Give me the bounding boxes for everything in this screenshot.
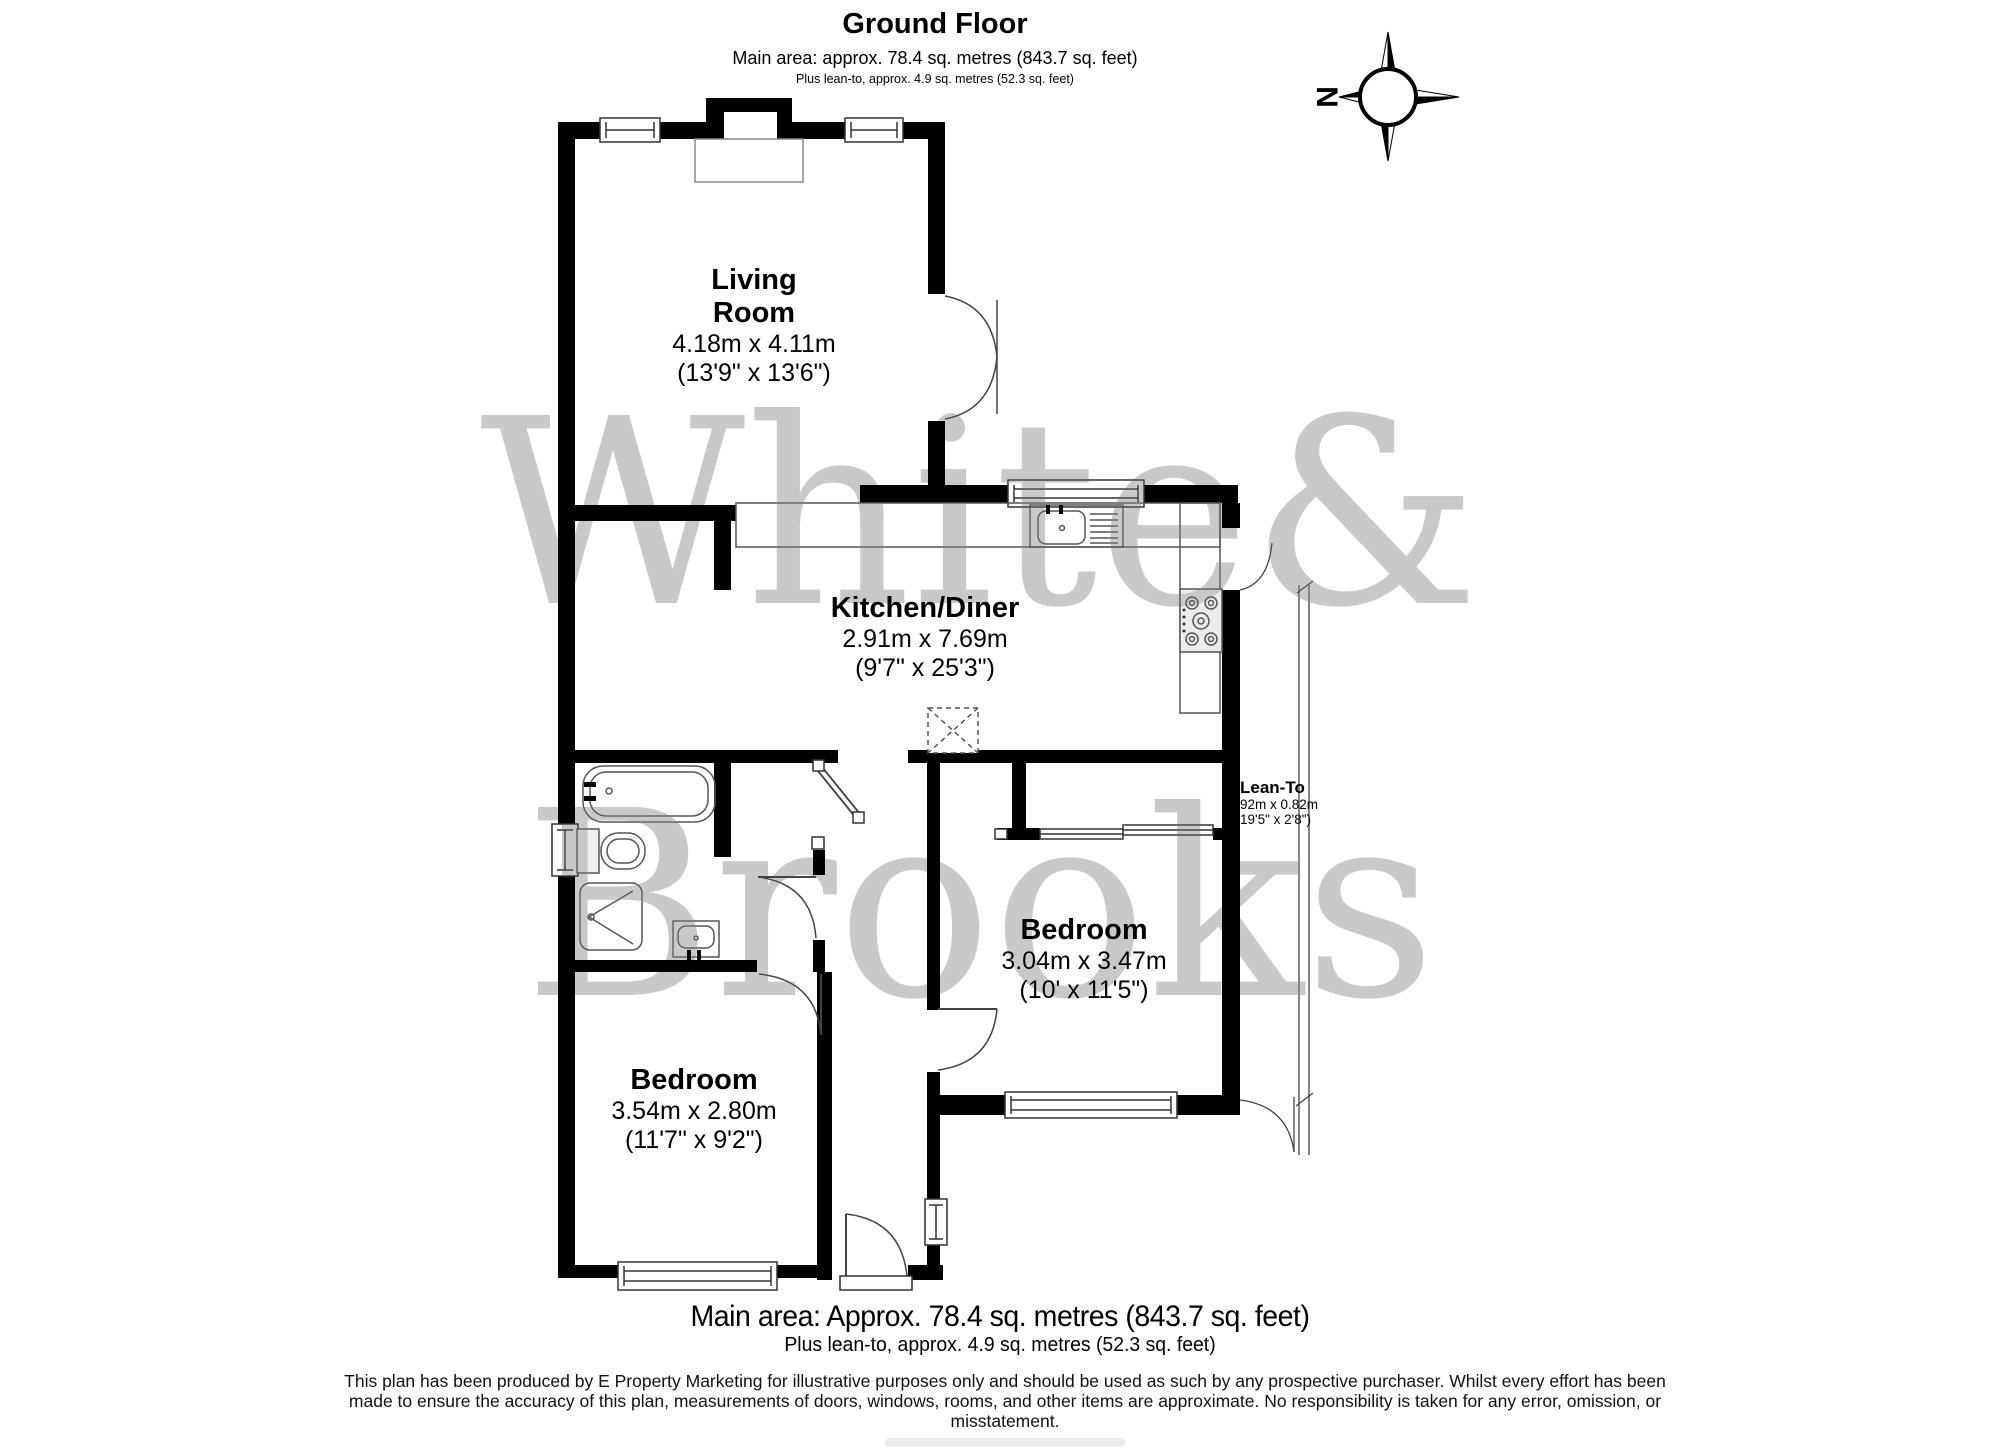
wash-basin: [673, 921, 719, 961]
door-bedroom-left: [759, 974, 821, 1035]
door-kitchen-to-hall: [813, 760, 864, 823]
kitchen-sink: [1030, 505, 1123, 547]
bath: [583, 766, 715, 822]
room-dim-imperial: 19'5" x 2'8"): [1240, 812, 1370, 827]
faded-credit-line: [885, 1438, 1125, 1447]
label-living-room: Living Room 4.18m x 4.11m (13'9" x 13'6"…: [604, 264, 904, 388]
room-dim-imperial: (11'7" x 9'2"): [544, 1126, 844, 1155]
floor-plan-svg: N: [0, 0, 2000, 1455]
door-bedroom-right: [938, 1009, 997, 1070]
floorplan-page: N Ground Floor Main area: approx. 78.4 s…: [0, 0, 2000, 1455]
window-bedroom-right-bottom: [1005, 1092, 1177, 1118]
room-name: Living: [604, 264, 904, 297]
room-dim-metric: 4.18m x 4.11m: [604, 330, 904, 359]
label-bedroom-left: Bedroom 3.54m x 2.80m (11'7" x 9'2"): [544, 1064, 844, 1155]
front-door: [840, 1214, 912, 1290]
window-vestibule: [925, 1199, 947, 1245]
page-title: Ground Floor: [340, 8, 1530, 41]
french-doors-living: [945, 296, 997, 419]
label-kitchen-diner: Kitchen/Diner 2.91m x 7.69m (9'7" x 25'3…: [775, 592, 1075, 683]
sink-drainer: [1090, 514, 1118, 543]
room-name: Room: [604, 297, 904, 330]
window-bathroom: [552, 824, 578, 876]
footer-area-main: Main area: Approx. 78.4 sq. metres (843.…: [335, 1300, 1665, 1334]
footer-area-lean: Plus lean-to, approx. 4.9 sq. metres (52…: [321, 1334, 1679, 1357]
window-living-left: [600, 118, 660, 142]
kitchen-hob: [1180, 589, 1222, 652]
window-bedroom-right-inner-b: [1123, 825, 1213, 835]
fixtures: [577, 139, 1222, 961]
header-area-lean: Plus lean-to, approx. 4.9 sq. metres (52…: [340, 72, 1530, 86]
room-name: Kitchen/Diner: [775, 592, 1075, 625]
label-bedroom-right: Bedroom 3.04m x 3.47m (10' x 11'5"): [934, 914, 1234, 1005]
room-dim-metric: 92m x 0.82m: [1240, 797, 1370, 812]
toilet: [577, 829, 645, 873]
room-dim-metric: 3.54m x 2.80m: [544, 1097, 844, 1126]
door-hall-lobby: [758, 877, 816, 938]
window-bedroom-left-bottom: [618, 1262, 777, 1290]
room-dim-imperial: (9'7" x 25'3"): [775, 654, 1075, 683]
window-living-right: [845, 118, 903, 142]
shower: [580, 883, 642, 950]
room-name: Bedroom: [934, 914, 1234, 947]
room-name: Lean-To: [1240, 779, 1370, 797]
room-name: Bedroom: [544, 1064, 844, 1097]
room-dim-imperial: (10' x 11'5"): [934, 976, 1234, 1005]
header-area-main: Main area: approx. 78.4 sq. metres (843.…: [340, 48, 1530, 69]
window-bedroom-right-inner-a: [1040, 829, 1123, 839]
header: Ground Floor Main area: approx. 78.4 sq.…: [340, 0, 1530, 86]
room-dim-imperial: (13'9" x 13'6"): [604, 359, 904, 388]
compass-north-label: N: [1310, 86, 1343, 108]
lean-to-structure: [1240, 543, 1313, 1155]
hatch-dashed-box: [928, 708, 978, 753]
room-dim-metric: 3.04m x 3.47m: [934, 947, 1234, 976]
footer-disclaimer: This plan has been produced by E Propert…: [330, 1371, 1680, 1431]
fireplace-hearth: [695, 139, 803, 182]
room-dim-metric: 2.91m x 7.69m: [775, 625, 1075, 654]
label-lean-to: Lean-To 92m x 0.82m 19'5" x 2'8"): [1240, 779, 1370, 827]
